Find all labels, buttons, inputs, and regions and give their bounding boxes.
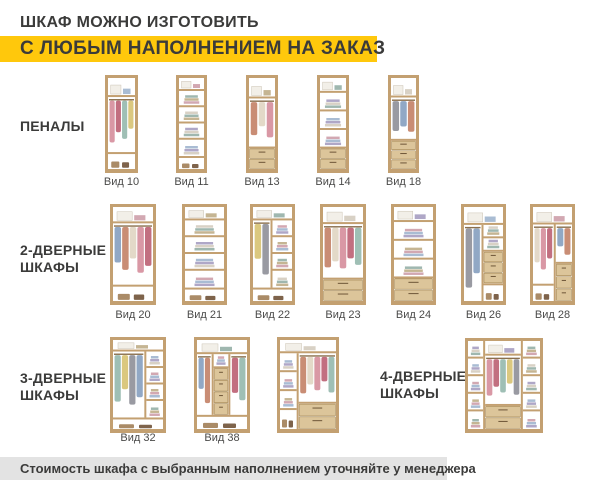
wardrobe-illustration [176, 75, 207, 173]
wardrobe-variant-label: Вид 32 [106, 432, 170, 444]
wardrobe-illustration [391, 204, 436, 305]
wardrobe-illustration [320, 204, 366, 305]
wardrobe-illustration [388, 75, 419, 173]
footer-note-bar: Стоимость шкафа с выбранным наполнением … [0, 457, 447, 480]
group-label: 3-ДВЕРНЫЕ ШКАФЫ [20, 370, 115, 404]
wardrobe-illustration [530, 204, 575, 305]
wardrobe-illustration [465, 338, 543, 433]
group-label: 2-ДВЕРНЫЕ ШКАФЫ [20, 242, 115, 276]
poster-subtitle-bar: С ЛЮБЫМ НАПОЛНЕНИЕМ НА ЗАКАЗ [0, 36, 377, 62]
wardrobe-variant-label: Вид 22 [241, 309, 305, 321]
wardrobe-variant-label: Вид 11 [160, 176, 224, 188]
poster-subtitle: С ЛЮБЫМ НАПОЛНЕНИЕМ НА ЗАКАЗ [20, 38, 385, 60]
group-label: ПЕНАЛЫ [20, 118, 115, 135]
catalog-poster: ШКАФ МОЖНО ИЗГОТОВИТЬ С ЛЮБЫМ НАПОЛНЕНИЕ… [0, 0, 600, 500]
wardrobe-variant-label: Вид 14 [301, 176, 365, 188]
wardrobe-illustration [110, 337, 166, 433]
wardrobe-illustration [246, 75, 278, 173]
wardrobe-illustration [317, 75, 349, 173]
wardrobe-illustration [461, 204, 506, 305]
wardrobe-illustration [105, 75, 138, 173]
wardrobe-variant-label: Вид 21 [173, 309, 237, 321]
wardrobe-variant-label: Вид 24 [382, 309, 446, 321]
wardrobe-variant-label: Вид 38 [190, 432, 254, 444]
wardrobe-illustration [277, 337, 339, 433]
wardrobe-variant-label: Вид 13 [230, 176, 294, 188]
wardrobe-variant-label: Вид 18 [372, 176, 436, 188]
wardrobe-illustration [194, 337, 250, 433]
wardrobe-illustration [250, 204, 295, 305]
footer-note: Стоимость шкафа с выбранным наполнением … [20, 461, 476, 476]
poster-title: ШКАФ МОЖНО ИЗГОТОВИТЬ [20, 14, 259, 32]
wardrobe-variant-label: Вид 28 [521, 309, 585, 321]
wardrobe-variant-label: Вид 10 [90, 176, 154, 188]
wardrobe-variant-label: Вид 20 [101, 309, 165, 321]
wardrobe-illustration [110, 204, 156, 305]
wardrobe-variant-label: Вид 23 [311, 309, 375, 321]
wardrobe-variant-label: Вид 26 [452, 309, 516, 321]
wardrobe-illustration [182, 204, 227, 305]
